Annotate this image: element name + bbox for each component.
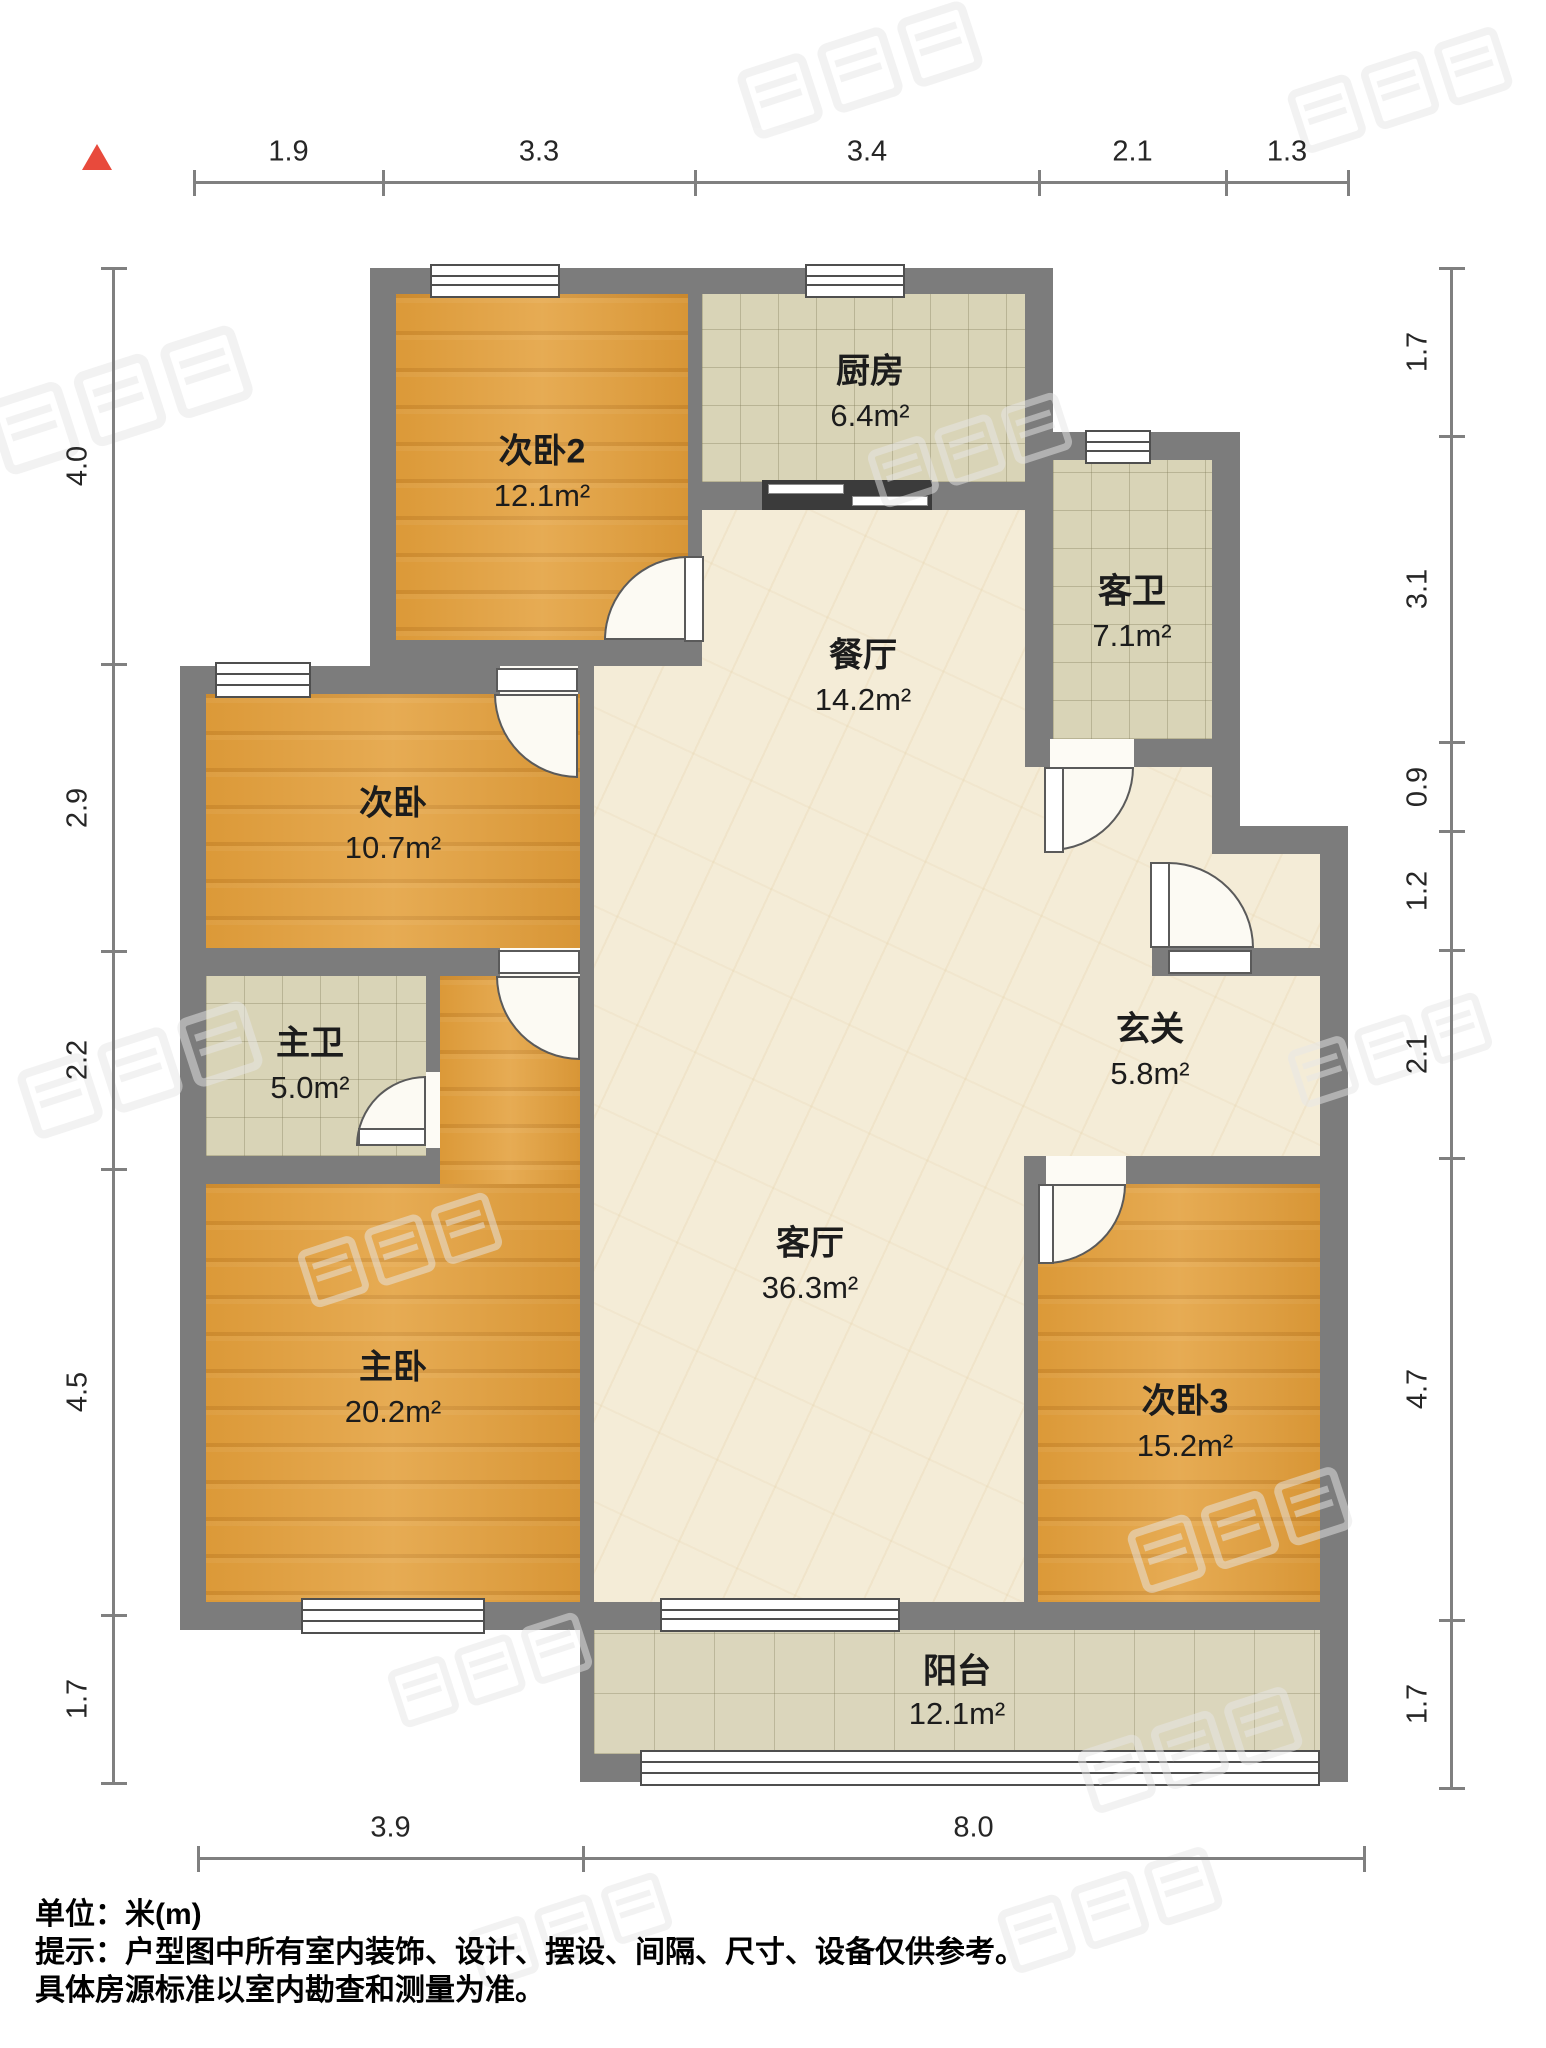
wall <box>580 666 594 1602</box>
dim-bottom-line <box>198 1857 1364 1860</box>
dim-top-label: 3.4 <box>847 136 887 169</box>
dim-right-tick <box>1439 830 1465 833</box>
window-guestbath <box>1085 430 1151 464</box>
dim-bottom-label: 8.0 <box>953 1812 993 1845</box>
dim-top-tick <box>1225 170 1228 196</box>
note-hint2: 具体房源标准以室内勘查和测量为准。 <box>35 1972 1025 2010</box>
dim-bottom-label: 3.9 <box>370 1812 410 1845</box>
wall <box>1212 432 1240 854</box>
room-area-living: 36.3m² <box>762 1270 858 1306</box>
wall <box>370 268 396 666</box>
watermark-logo-icon <box>0 323 256 478</box>
window-kitchen <box>805 264 905 298</box>
dim-right-tick <box>1439 267 1465 270</box>
wall <box>1024 1156 1038 1602</box>
dim-right-tick <box>1439 435 1465 438</box>
dim-left-line <box>112 268 115 1783</box>
dim-right-tick <box>1439 1619 1465 1622</box>
room-name-dining: 餐厅 <box>829 628 897 677</box>
room-name-bedroom: 次卧 <box>359 776 427 825</box>
note-unit: 单位：米(m) <box>35 1896 1025 1934</box>
dim-top-label: 2.1 <box>1112 136 1152 169</box>
door-entrance-leaf <box>1150 862 1170 948</box>
room-name-master: 主卧 <box>359 1340 427 1389</box>
door-bedroom2-leaf <box>684 556 704 642</box>
wall <box>1320 826 1348 1782</box>
dim-left-label: 4.0 <box>62 446 95 486</box>
dim-top-label: 1.3 <box>1267 136 1307 169</box>
watermark-logo-icon <box>995 1845 1225 1976</box>
dim-right-label: 3.1 <box>1402 569 1435 609</box>
room-area-masterbath: 5.0m² <box>270 1070 349 1106</box>
dim-right-tick <box>1439 1787 1465 1790</box>
dim-left-tick <box>101 1168 127 1171</box>
door-bedroom3-leaf <box>1038 1184 1054 1264</box>
exterior-notch <box>1240 430 1400 826</box>
room-area-master: 20.2m² <box>345 1394 441 1430</box>
dim-top-tick <box>694 170 697 196</box>
room-floor-master <box>206 1184 580 1602</box>
door-opening <box>1046 1156 1126 1184</box>
door-entrance-leaf <box>1168 950 1252 974</box>
door-opening <box>1050 739 1134 767</box>
dim-left-tick <box>101 267 127 270</box>
dim-top-label: 1.9 <box>268 136 308 169</box>
dim-top-tick <box>1347 170 1350 196</box>
north-triangle-icon <box>82 144 112 170</box>
dim-right-label: 2.1 <box>1402 1034 1435 1074</box>
wall <box>1025 268 1053 767</box>
wall <box>180 1156 440 1184</box>
floorplan-canvas: 客厅36.3m²次卧212.1m²厨房6.4m²客卫7.1m²餐厅14.2m²次… <box>0 0 1546 2048</box>
room-area-guestbath: 7.1m² <box>1092 618 1171 654</box>
dim-top-label: 3.3 <box>519 136 559 169</box>
wall <box>370 640 702 666</box>
window-balcony <box>640 1750 1320 1786</box>
dim-bottom-tick <box>1363 1846 1366 1872</box>
room-area-bedroom2: 12.1m² <box>494 478 590 514</box>
door-opening <box>426 1072 440 1148</box>
dim-left-label: 2.2 <box>62 1040 95 1080</box>
wall <box>180 666 206 1630</box>
sliding-door-panel <box>768 484 844 494</box>
door-masterbath-leaf <box>358 1128 426 1146</box>
door-bedroom-leaf <box>496 668 578 692</box>
room-name-living: 客厅 <box>776 1216 844 1265</box>
room-name-bedroom3: 次卧3 <box>1142 1374 1229 1423</box>
dim-bottom-tick <box>197 1846 200 1872</box>
window-bedroom2 <box>430 264 560 298</box>
dim-right-label: 0.9 <box>1402 766 1435 806</box>
sliding-door-panel <box>852 496 928 506</box>
sliding-door-balcony <box>660 1598 900 1632</box>
dim-right-tick <box>1439 949 1465 952</box>
dim-left-tick <box>101 1614 127 1617</box>
room-area-bedroom3: 15.2m² <box>1137 1428 1233 1464</box>
dim-right-label: 4.7 <box>1402 1369 1435 1409</box>
door-guestbath-leaf <box>1044 767 1064 853</box>
dim-left-label: 1.7 <box>62 1679 95 1719</box>
dim-left-tick <box>101 1782 127 1785</box>
door-master-leaf <box>498 950 580 974</box>
footer-notes: 单位：米(m) 提示：户型图中所有室内装饰、设计、摆设、间隔、尺寸、设备仅供参考… <box>35 1896 1025 2010</box>
dim-right-line <box>1450 268 1453 1788</box>
room-area-kitchen: 6.4m² <box>830 398 909 434</box>
dim-right-label: 1.7 <box>1402 332 1435 372</box>
dim-left-label: 4.5 <box>62 1372 95 1412</box>
dim-right-label: 1.7 <box>1402 1684 1435 1724</box>
room-name-entry: 玄关 <box>1116 1002 1184 1051</box>
watermark-logo-icon <box>1285 25 1515 156</box>
room-name-balcony: 阳台 <box>923 1644 991 1693</box>
room-name-masterbath: 主卫 <box>276 1016 344 1065</box>
window-bedroom <box>215 662 311 698</box>
dim-left-tick <box>101 663 127 666</box>
room-name-bedroom2: 次卧2 <box>499 424 586 473</box>
dim-top-tick <box>382 170 385 196</box>
dim-top-line <box>194 181 1348 184</box>
dim-right-label: 1.2 <box>1402 870 1435 910</box>
dim-right-tick <box>1439 1157 1465 1160</box>
dim-top-tick <box>193 170 196 196</box>
dim-top-tick <box>1038 170 1041 196</box>
wall <box>580 1602 594 1782</box>
dim-left-tick <box>101 950 127 953</box>
room-name-guestbath: 客卫 <box>1098 564 1166 613</box>
note-hint: 提示：户型图中所有室内装饰、设计、摆设、间隔、尺寸、设备仅供参考。 <box>35 1934 1025 1972</box>
room-area-balcony: 12.1m² <box>909 1696 1005 1732</box>
room-area-bedroom: 10.7m² <box>345 830 441 866</box>
dim-bottom-tick <box>582 1846 585 1872</box>
dim-right-tick <box>1439 741 1465 744</box>
watermark-logo-icon <box>735 0 986 141</box>
window-master <box>301 1598 485 1634</box>
dim-left-label: 2.9 <box>62 787 95 827</box>
room-area-dining: 14.2m² <box>815 682 911 718</box>
room-name-kitchen: 厨房 <box>836 344 904 393</box>
room-area-entry: 5.8m² <box>1110 1056 1189 1092</box>
